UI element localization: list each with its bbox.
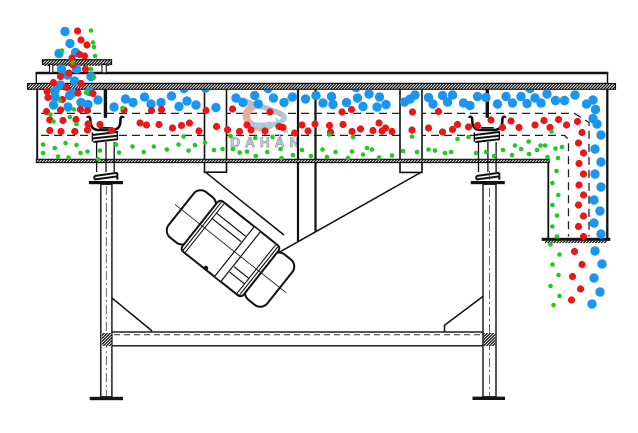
svg-text:DAHAN: DAHAN [230, 135, 304, 150]
